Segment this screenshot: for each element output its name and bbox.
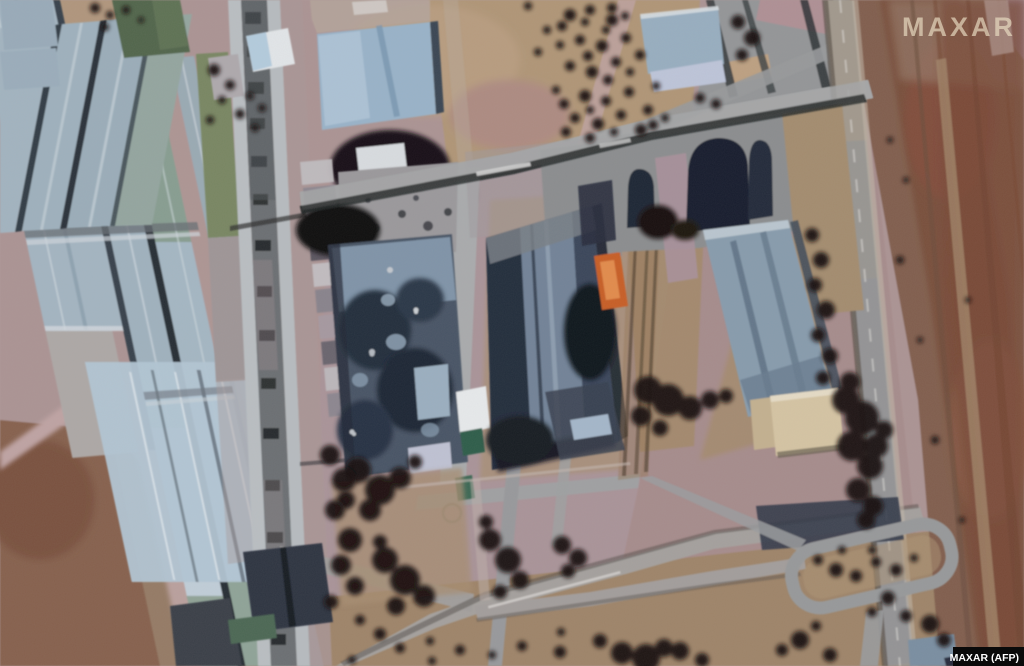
svg-text:MAXAR: MAXAR (902, 12, 1016, 42)
svg-text:MAXAR (AFP): MAXAR (AFP) (950, 652, 1019, 664)
